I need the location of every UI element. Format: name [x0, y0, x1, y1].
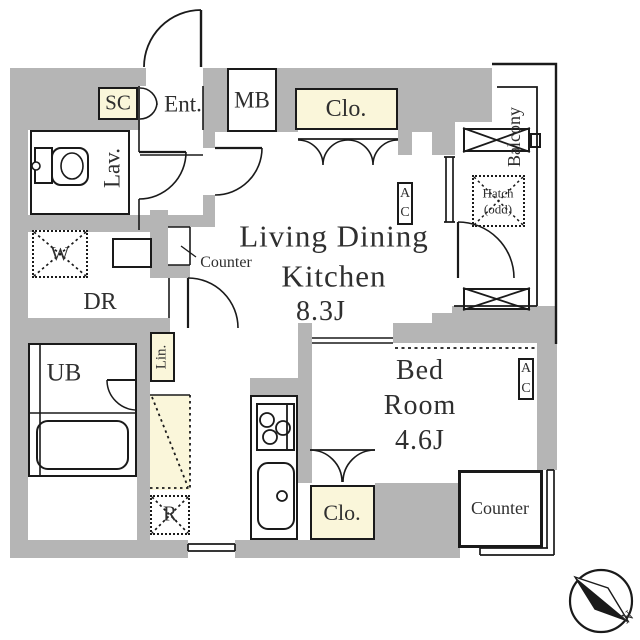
closet-lower-doors [310, 450, 375, 482]
hatch-label-2: (odd) [484, 203, 512, 216]
unit-bath-lines [28, 343, 137, 477]
hatch-label-1: Hatch [482, 187, 513, 200]
refrigerator-label: R [163, 504, 177, 525]
entrance-label: Ent. [164, 93, 202, 116]
floorplan-canvas: SC Ent. MB Clo. Balcony Lav. Hatch (odd)… [0, 0, 640, 640]
lavatory-door-arc [139, 152, 186, 199]
meter-box-label: MB [234, 89, 270, 112]
ldk-label-2: Kitchen [281, 261, 386, 292]
bedroom-label-2: Room [384, 392, 456, 420]
counter-ldk-label: Counter [200, 255, 252, 271]
bottom-window [188, 544, 235, 551]
closet-lower-label: Clo. [323, 502, 360, 524]
bedroom-size-label: 4.6J [395, 427, 445, 455]
shoe-closet-label: SC [105, 93, 131, 114]
hall-ldk-door-arc [215, 148, 262, 195]
dressing-room-label: DR [83, 290, 116, 314]
bedroom-label-1: Bed [396, 357, 444, 385]
counter-leader-line [181, 246, 196, 257]
washer-label: W [51, 244, 70, 264]
lavatory-label: Lav. [101, 148, 124, 188]
storage-dotted-edges [150, 395, 190, 490]
unit-bath-door-arc [107, 380, 137, 410]
closet-upper-doors [298, 140, 398, 165]
ldk-balcony-window [444, 157, 455, 222]
toilet-knob [32, 162, 40, 170]
unit-bath-label: UB [47, 361, 82, 386]
burner-1 [260, 413, 274, 427]
ldk-label-1: Living Dining [239, 221, 429, 252]
linen-label: Lin. [155, 345, 170, 370]
sliding-door-ldk-bedroom [312, 338, 393, 343]
ac-bedroom-letter-a: A [521, 362, 531, 376]
counter-nook-outline [168, 227, 190, 265]
balcony-door-arc [458, 222, 514, 278]
closet-upper-label: Clo. [326, 97, 367, 121]
burner-2 [263, 430, 277, 444]
ac-ldk-letter-a: A [400, 187, 410, 201]
shoe-closet-doors [140, 88, 157, 119]
dr-ldk-door-arc [188, 278, 238, 328]
balcony-label: Balcony [505, 107, 523, 167]
entrance-door-arc [144, 10, 201, 67]
counter-bedroom-label: Counter [471, 499, 529, 517]
ldk-size-label: 8.3J [296, 298, 346, 326]
ac-bedroom-letter-c: C [521, 382, 530, 396]
sink [258, 463, 294, 529]
